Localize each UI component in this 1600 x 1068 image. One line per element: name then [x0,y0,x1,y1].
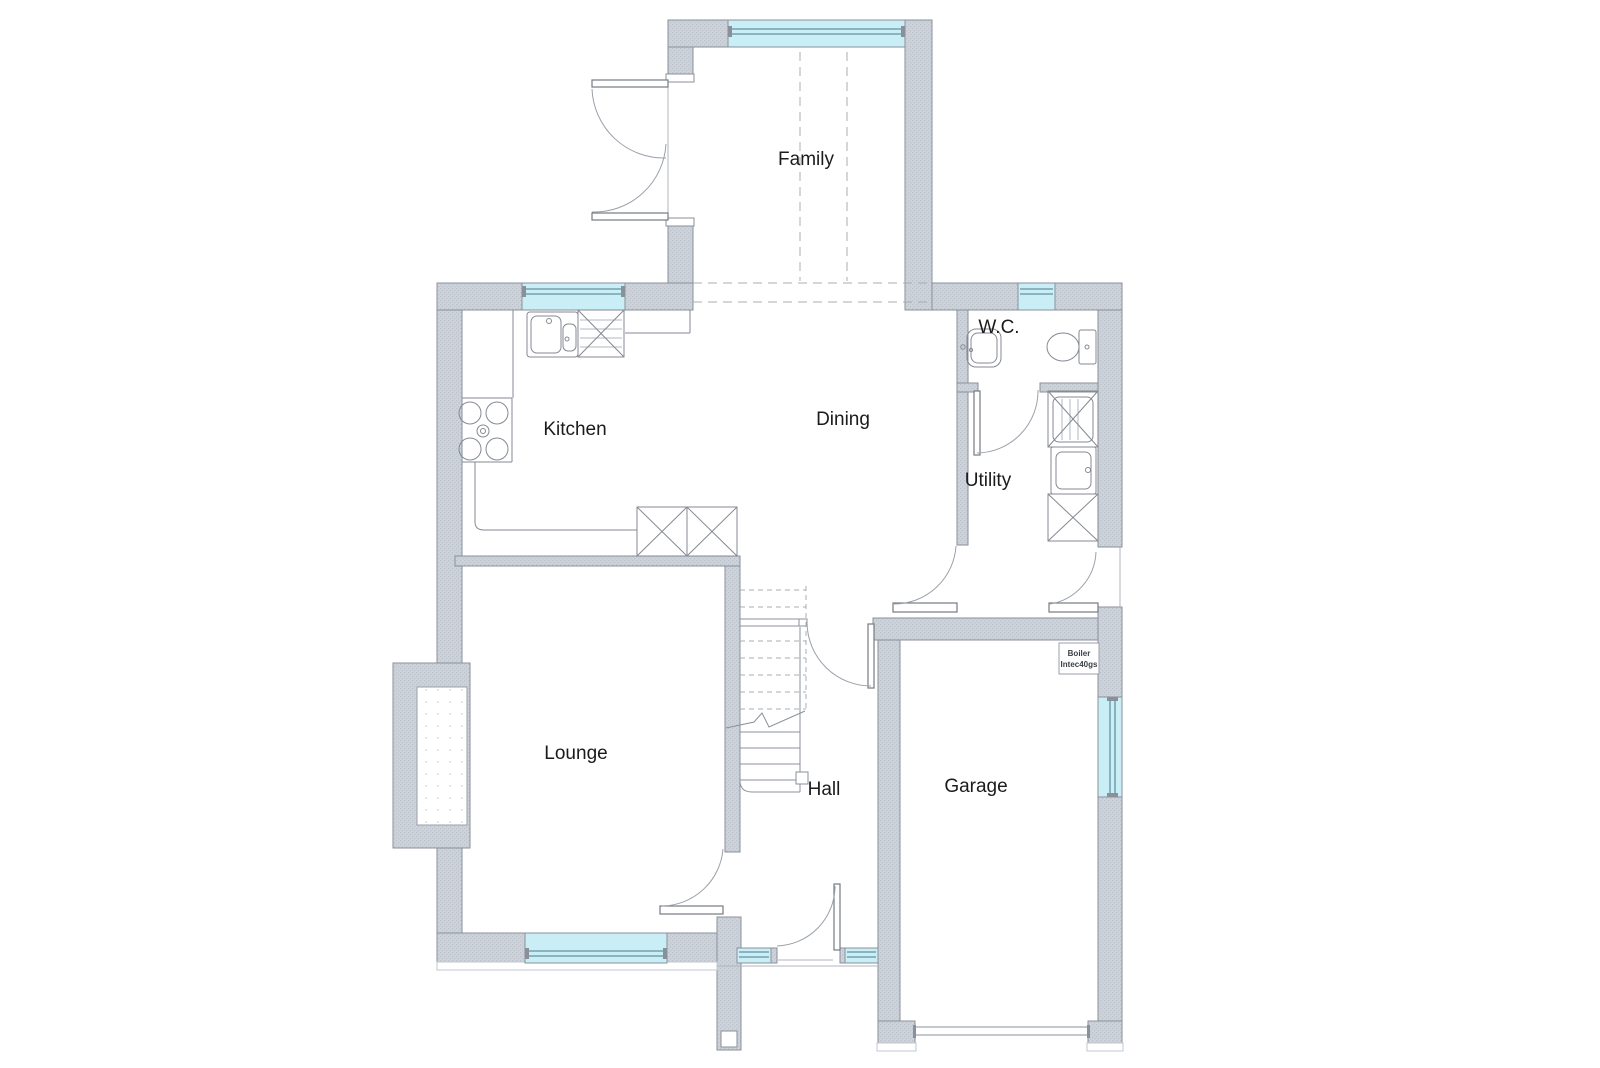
hall-window-right [845,948,878,963]
boiler-label-line1: Boiler [1068,649,1091,658]
fireplace-chimney [393,663,470,848]
family-window [728,20,905,47]
floor-plan-drawing: Boiler Intec40gs Family Kitchen Dining W… [0,0,1600,1068]
utility-appliance-bottom [1048,494,1098,541]
hall-window-left [737,948,771,963]
room-label-dining: Dining [816,409,870,430]
garage-window [1098,697,1122,797]
wc-toilet [1047,330,1096,364]
rear-lobby-door [893,546,957,612]
kitchen-appliance [578,310,624,357]
newel-post [796,772,808,784]
room-label-utility: Utility [965,470,1012,491]
dining-hall-door [740,619,874,688]
boiler-label-line2: Intec40gs [1061,660,1098,669]
lounge-window [525,933,667,963]
room-label-family: Family [778,149,834,170]
room-label-garage: Garage [944,776,1007,797]
french-doors [592,74,694,226]
front-door [777,884,840,960]
room-label-kitchen: Kitchen [543,419,606,440]
hob [459,398,512,462]
wc-window [1018,283,1055,310]
lounge-door [660,849,723,914]
room-label-hall: Hall [808,779,841,800]
dashed-opening-lines [693,52,928,302]
utility-fixtures [1048,391,1098,541]
boiler: Boiler Intec40gs [1059,643,1099,674]
kitchen-sink [527,312,578,357]
exterior-walls [393,20,1123,1051]
room-label-lounge: Lounge [544,743,607,764]
kitchen-base-units [637,507,737,556]
wc-door [974,390,1038,455]
porch-column [717,917,741,1050]
room-labels: Family Kitchen Dining W.C. Utility Loung… [543,149,1019,800]
utility-appliance-top [1048,391,1098,447]
utility-sink [1051,447,1096,494]
kitchen-window [522,283,625,310]
room-label-wc: W.C. [978,317,1019,338]
utility-back-door [1049,552,1098,612]
garage-door [913,1025,1090,1038]
floor-plan-page: Boiler Intec40gs Family Kitchen Dining W… [0,0,1600,1068]
